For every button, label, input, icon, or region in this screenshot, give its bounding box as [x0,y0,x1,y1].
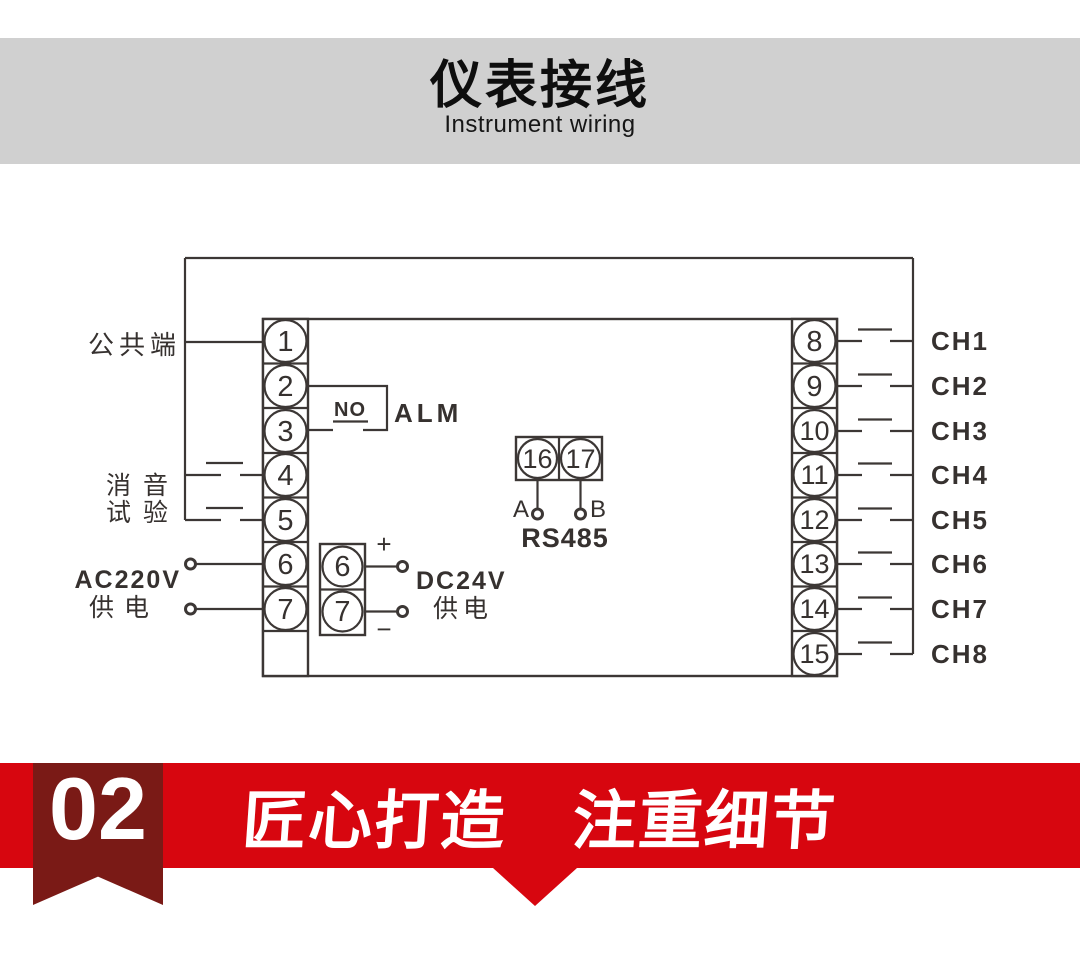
ch3-switch [837,420,913,432]
terminal-number: 5 [277,505,293,537]
rs485-terminal-17: 17 [565,444,595,474]
terminal-number: 11 [800,460,828,490]
ch8-switch [837,643,913,655]
ch5-switch [837,509,913,521]
dc-terminal-6: 6 [334,551,350,583]
terminal-number: 12 [799,505,829,535]
alm-label: ALM [394,398,462,428]
terminal-number: 6 [277,549,293,581]
terminal-number: 9 [806,371,822,403]
page: 仪表接线 Instrument wiring NO [0,0,1080,960]
terminal-12: 12 [794,499,836,541]
alarm-contact: NO ALM [308,386,462,430]
common-label: 公共端 [88,330,181,360]
ac-power-label: 供电 [89,594,159,622]
section-number: 02 [33,763,163,853]
ch5-label: CH5 [931,505,989,535]
rs485-a-label: A [513,496,529,523]
ch3-label: CH3 [931,416,989,446]
ac-terminal-ring-1 [186,559,196,569]
terminal-number: 13 [799,549,829,579]
terminal-number: 1 [277,326,293,358]
terminal-number: 8 [806,326,822,358]
plus-sign: + [376,529,391,559]
terminal-14: 14 [794,588,836,630]
ch4-label: CH4 [931,460,989,490]
terminal-9: 9 [794,365,836,407]
test-switch [185,508,263,520]
ch7-label: CH7 [931,594,989,624]
dc24v-label: DC24V [416,567,507,595]
rs485-b-label: B [590,496,606,523]
terminal-number: 10 [799,416,829,446]
ch1-switch [837,330,913,342]
dc-plus-ring [398,562,408,572]
ch1-label: CH1 [931,326,989,356]
terminal-5: 5 [265,499,307,541]
mute-switch [185,463,263,475]
dc-terminal-7: 7 [334,596,350,628]
section-title: 匠心打造 注重细节 [240,770,840,862]
mute-label: 消音 [106,472,180,500]
terminal-2: 2 [265,365,307,407]
pointer-triangle [493,868,577,906]
ac220v-label: AC220V [75,566,182,594]
terminal-number: 4 [277,460,293,492]
terminal-7: 7 [265,588,307,630]
rs485-label: RS485 [521,523,609,553]
dc24v-block: 6 7 + − DC24V 供电 [320,529,507,644]
rs485-a-ring [533,509,543,519]
terminal-6: 6 [265,543,307,585]
terminal-number: 3 [277,416,293,448]
terminal-13: 13 [794,543,836,585]
dc-minus-ring [398,607,408,617]
ch6-switch [837,553,913,565]
ch6-label: CH6 [931,549,989,579]
dc-power-label: 供电 [433,595,493,623]
terminal-number: 15 [799,639,829,669]
rs485-terminal-16: 16 [522,444,552,474]
minus-sign: − [376,614,391,644]
terminal-15: 15 [794,633,836,675]
test-label: 试验 [106,499,180,527]
terminal-4: 4 [265,454,307,496]
ch8-label: CH8 [931,639,989,669]
terminal-10: 10 [794,410,836,452]
terminal-3: 3 [265,410,307,452]
terminal-8: 8 [794,320,836,362]
rs485-b-ring [576,509,586,519]
ch2-switch [837,375,913,387]
rs485-block: 16 17 A B RS485 [513,437,609,553]
terminal-number: 2 [277,371,293,403]
terminal-number: 7 [277,594,293,626]
no-label: NO [334,399,366,421]
ch7-switch [837,598,913,610]
ac-terminal-ring-2 [186,604,196,614]
terminal-11: 11 [794,454,836,496]
ch2-label: CH2 [931,371,989,401]
terminal-number: 14 [799,594,829,624]
terminal-1: 1 [265,320,307,362]
ch4-switch [837,464,913,476]
